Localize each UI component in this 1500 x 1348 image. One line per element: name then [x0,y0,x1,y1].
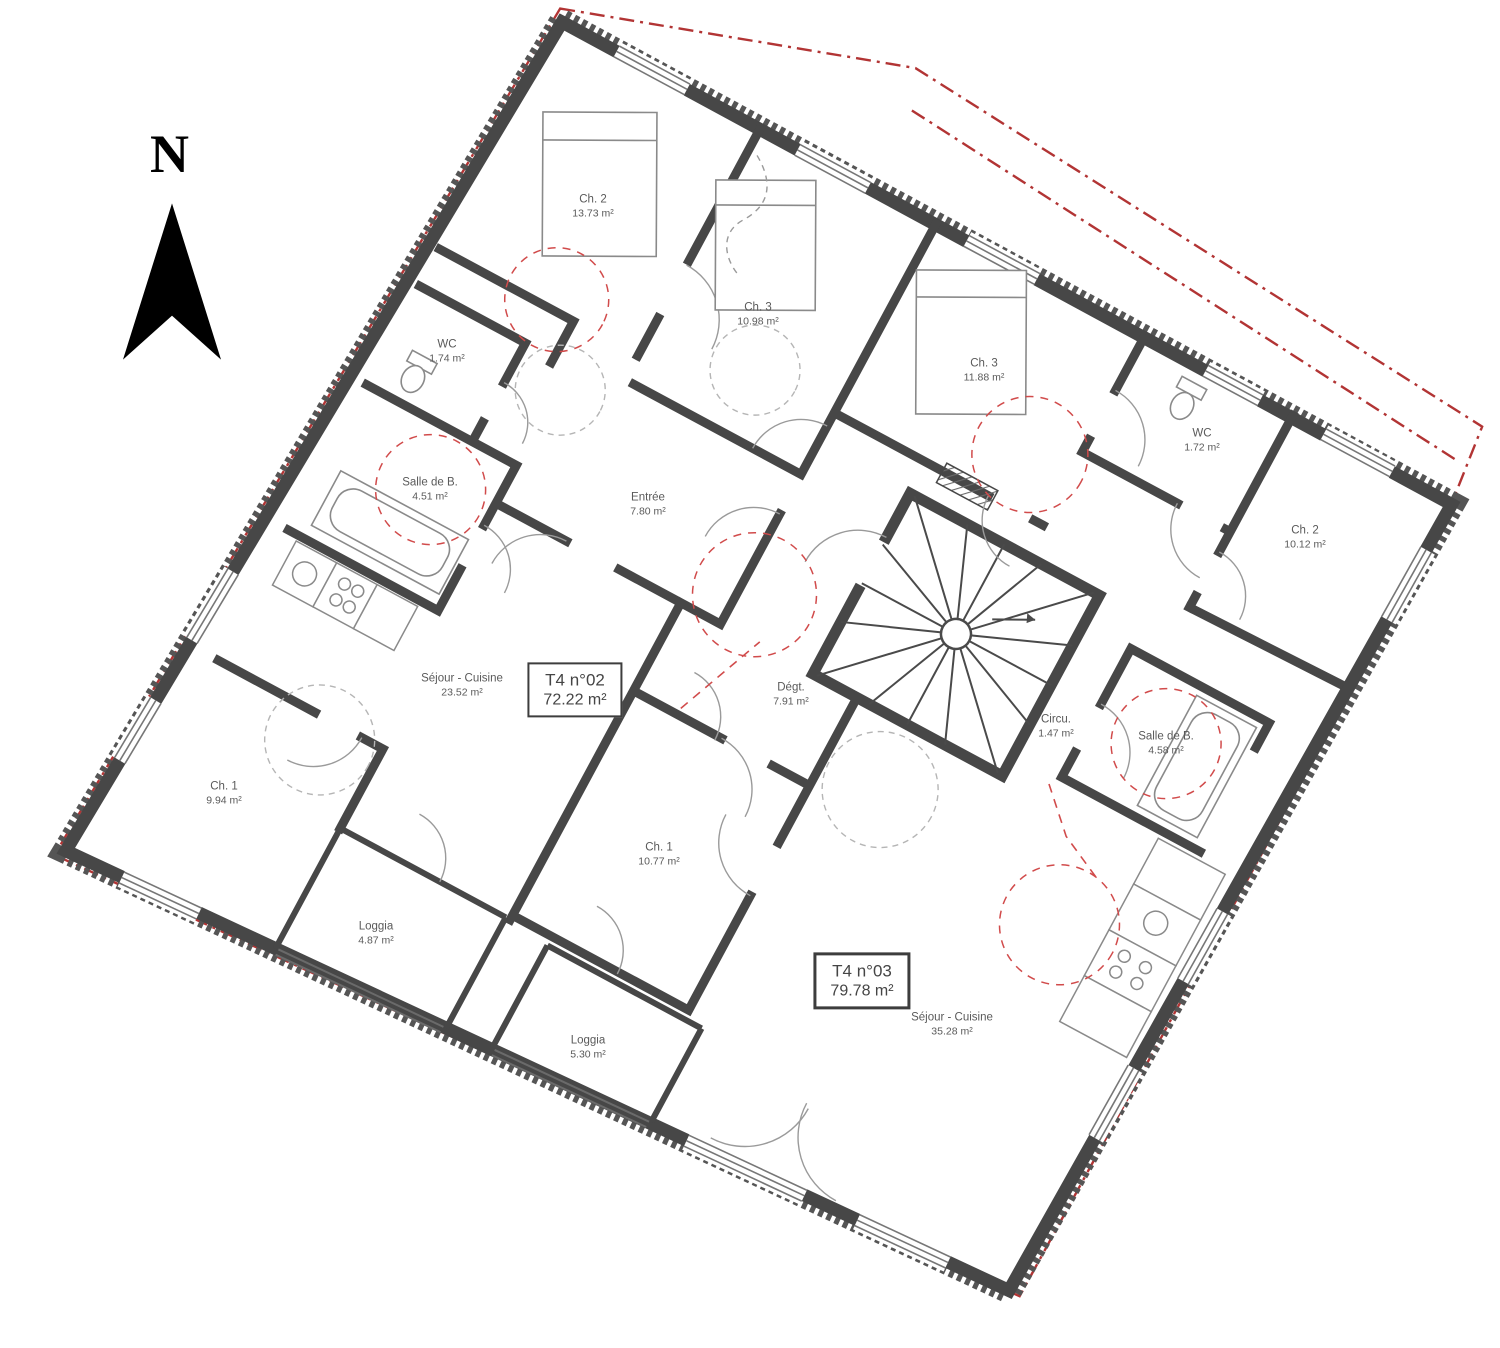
apartment-lot-label: T4 n°0272.22 m² [527,662,622,717]
apartment-lot-label: T4 n°0379.78 m² [813,952,910,1009]
lot-boxes-layer: T4 n°0272.22 m²T4 n°0379.78 m² [0,0,1500,1348]
floor-plan-page: N [0,0,1500,1348]
